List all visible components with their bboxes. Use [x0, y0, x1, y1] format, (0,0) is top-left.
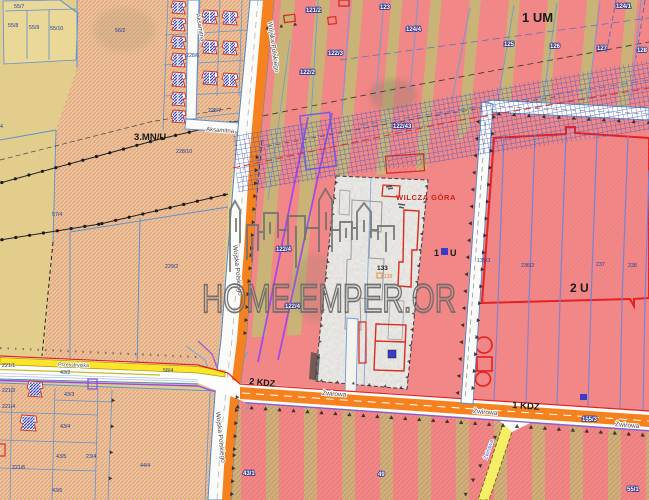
- svg-text:43/4: 43/4: [60, 424, 70, 430]
- svg-text:135/3: 135/3: [477, 258, 490, 264]
- svg-text:126: 126: [550, 44, 561, 50]
- svg-text:124/4: 124/4: [406, 27, 422, 33]
- svg-text:229/2: 229/2: [165, 264, 178, 270]
- svg-text:125: 125: [504, 42, 515, 48]
- svg-text:121/2: 121/2: [306, 8, 322, 14]
- svg-text:127: 127: [597, 46, 608, 52]
- svg-text:236/2: 236/2: [521, 263, 534, 269]
- svg-text:55/9: 55/9: [29, 25, 39, 31]
- svg-text:228/7: 228/7: [208, 108, 221, 114]
- svg-text:228/10: 228/10: [176, 149, 192, 155]
- svg-text:128: 128: [637, 48, 648, 54]
- svg-text:43/6: 43/6: [52, 488, 62, 494]
- svg-text:Przesstryjska: Przesstryjska: [58, 362, 89, 369]
- svg-text:133: 133: [377, 265, 388, 272]
- svg-text:221/4: 221/4: [2, 404, 15, 410]
- svg-text:3.MN/U: 3.MN/U: [134, 132, 166, 143]
- svg-text:43/1: 43/1: [243, 471, 255, 477]
- svg-text:43/5: 43/5: [56, 454, 66, 460]
- svg-text:43/2: 43/2: [60, 370, 70, 376]
- svg-text:124/1: 124/1: [616, 4, 632, 10]
- svg-text:44/4: 44/4: [140, 463, 150, 469]
- svg-text:123: 123: [380, 5, 391, 11]
- svg-text:HOME EMPER.OR: HOME EMPER.OR: [202, 277, 456, 321]
- svg-text:122/3: 122/3: [328, 51, 344, 57]
- svg-text:237: 237: [596, 262, 605, 268]
- svg-text:2 U: 2 U: [570, 281, 589, 295]
- svg-text:55/10: 55/10: [50, 26, 63, 32]
- svg-text:U: U: [450, 248, 457, 258]
- svg-text:56/2: 56/2: [115, 28, 125, 34]
- svg-text:23/4: 23/4: [86, 454, 96, 460]
- svg-text:1 KDZ: 1 KDZ: [512, 400, 540, 413]
- svg-text:221/3: 221/3: [2, 388, 15, 394]
- svg-text:221/6: 221/6: [12, 465, 25, 471]
- svg-text:57/4: 57/4: [52, 212, 62, 218]
- svg-text:58/4: 58/4: [163, 368, 173, 374]
- svg-text:122/4: 122/4: [276, 247, 292, 253]
- svg-text:122/43: 122/43: [393, 124, 412, 130]
- svg-text:55/1: 55/1: [627, 487, 639, 493]
- svg-text:221/1: 221/1: [2, 363, 15, 369]
- svg-text:155/3: 155/3: [582, 417, 598, 423]
- svg-text:228/6: 228/6: [186, 53, 199, 59]
- svg-text:238: 238: [628, 263, 637, 269]
- svg-text:43/3: 43/3: [64, 392, 74, 398]
- svg-text:WILCZA GÓRA: WILCZA GÓRA: [396, 193, 456, 202]
- svg-text:49: 49: [378, 472, 385, 478]
- svg-text:55/7: 55/7: [14, 4, 24, 10]
- svg-text:122/2: 122/2: [300, 70, 316, 76]
- svg-text:1: 1: [434, 248, 439, 258]
- svg-text:55/8: 55/8: [8, 23, 18, 29]
- svg-text:4: 4: [0, 124, 3, 130]
- svg-text:1 UM: 1 UM: [522, 10, 553, 25]
